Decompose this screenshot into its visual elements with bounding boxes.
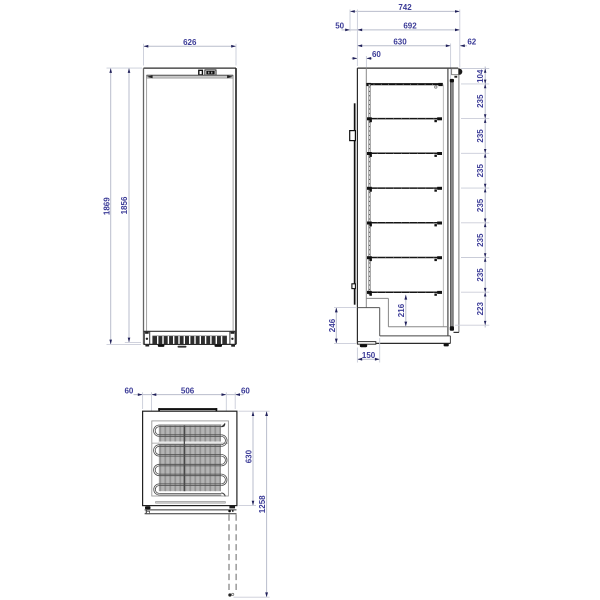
svg-text:235: 235 xyxy=(476,129,485,143)
svg-text:235: 235 xyxy=(476,233,485,247)
svg-text:630: 630 xyxy=(393,38,407,47)
svg-text:630: 630 xyxy=(244,449,253,463)
svg-text:692: 692 xyxy=(403,22,417,31)
svg-text:235: 235 xyxy=(476,268,485,282)
svg-text:223: 223 xyxy=(476,301,485,315)
svg-text:235: 235 xyxy=(476,198,485,212)
svg-text:626: 626 xyxy=(183,38,197,47)
svg-text:60: 60 xyxy=(124,386,133,395)
svg-text:150: 150 xyxy=(362,351,376,360)
svg-text:1869: 1869 xyxy=(103,197,112,215)
svg-text:104: 104 xyxy=(476,69,485,83)
svg-text:235: 235 xyxy=(476,163,485,177)
svg-text:506: 506 xyxy=(181,386,195,395)
svg-text:62: 62 xyxy=(467,38,476,47)
svg-text:1856: 1856 xyxy=(120,196,129,214)
svg-text:50: 50 xyxy=(335,22,344,31)
svg-text:60: 60 xyxy=(241,386,250,395)
svg-text:246: 246 xyxy=(328,318,337,332)
svg-text:235: 235 xyxy=(476,94,485,108)
svg-text:1258: 1258 xyxy=(258,495,267,513)
svg-text:216: 216 xyxy=(397,303,406,317)
svg-text:60: 60 xyxy=(372,50,381,59)
svg-text:742: 742 xyxy=(398,3,412,12)
